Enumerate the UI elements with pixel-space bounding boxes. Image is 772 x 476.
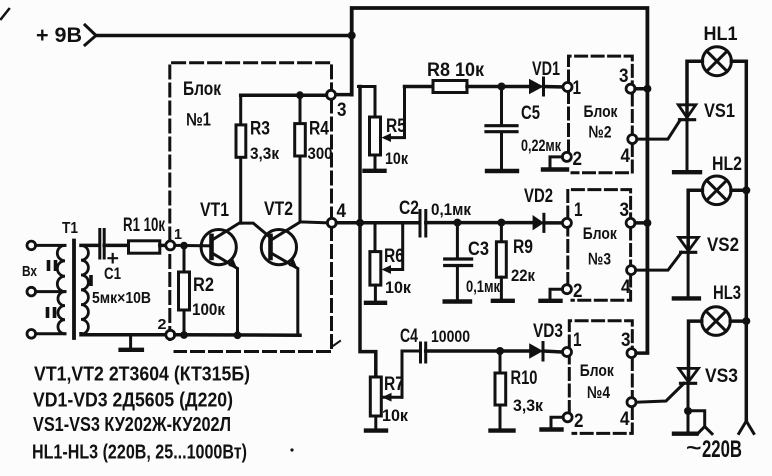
svg-text:1: 1 xyxy=(573,78,582,99)
svg-text:VD3: VD3 xyxy=(533,321,563,342)
svg-text:№2: №2 xyxy=(589,123,612,142)
svg-text:C4: C4 xyxy=(400,326,418,347)
svg-text:R4: R4 xyxy=(309,119,329,140)
svg-text:R1 10к: R1 10к xyxy=(123,215,165,236)
svg-text:VD2: VD2 xyxy=(524,186,553,207)
svg-text:Блок: Блок xyxy=(584,103,619,121)
svg-text:0,1мк: 0,1мк xyxy=(466,278,501,296)
svg-text:VD1-VD3 2Д5605 (Д220): VD1-VD3 2Д5605 (Д220) xyxy=(33,389,233,412)
svg-text:2: 2 xyxy=(158,316,167,333)
svg-text:VT1,VT2 2Т3604 (КТ315Б): VT1,VT2 2Т3604 (КТ315Б) xyxy=(34,363,250,386)
svg-text:3: 3 xyxy=(619,66,629,87)
svg-text:T1: T1 xyxy=(62,220,78,237)
svg-text:3: 3 xyxy=(620,200,630,221)
svg-text:10к: 10к xyxy=(385,278,411,297)
svg-text:С1: С1 xyxy=(104,264,121,283)
svg-text:Вх: Вх xyxy=(22,263,38,280)
svg-text:Блок: Блок xyxy=(580,362,615,380)
svg-text:VT1: VT1 xyxy=(200,200,229,221)
svg-text:C5: C5 xyxy=(521,103,540,124)
svg-text:4: 4 xyxy=(621,277,631,298)
svg-text:Блок: Блок xyxy=(183,79,221,100)
svg-text:R6: R6 xyxy=(384,246,404,267)
svg-text:VD1: VD1 xyxy=(532,59,560,80)
svg-text:3,3к: 3,3к xyxy=(513,396,543,415)
svg-text:R2: R2 xyxy=(193,275,214,296)
svg-text:VS1: VS1 xyxy=(704,101,735,122)
svg-text:0,22мк: 0,22мк xyxy=(521,137,562,155)
svg-text:VT2: VT2 xyxy=(264,199,293,220)
svg-text:HL2: HL2 xyxy=(712,154,742,175)
svg-text:C2: C2 xyxy=(399,198,419,219)
svg-text:R7: R7 xyxy=(384,374,404,395)
svg-text:0,1мк: 0,1мк xyxy=(431,201,472,219)
svg-text:4: 4 xyxy=(337,201,347,222)
svg-text:3,3к: 3,3к xyxy=(250,144,279,163)
svg-text:№1: №1 xyxy=(186,110,211,130)
svg-text:220В: 220В xyxy=(702,436,742,463)
svg-text:№4: №4 xyxy=(587,383,610,402)
svg-text:№3: №3 xyxy=(588,250,611,269)
svg-text:R9: R9 xyxy=(513,237,533,258)
svg-text:HL3: HL3 xyxy=(713,283,741,304)
svg-text:1: 1 xyxy=(574,200,583,221)
svg-text:R8 10к: R8 10к xyxy=(427,60,484,81)
svg-text:C3: C3 xyxy=(468,239,489,260)
svg-text:~: ~ xyxy=(686,437,702,460)
svg-text:5мк×10В: 5мк×10В xyxy=(92,290,151,307)
svg-text:22к: 22к xyxy=(511,266,535,285)
svg-text:2: 2 xyxy=(573,281,583,302)
svg-text:10000: 10000 xyxy=(431,328,470,346)
svg-text:HL1-HL3 (220В, 25...1000Вт): HL1-HL3 (220В, 25...1000Вт) xyxy=(32,441,247,464)
svg-text:1: 1 xyxy=(573,330,582,351)
svg-text:2: 2 xyxy=(573,149,583,170)
svg-text:VS3: VS3 xyxy=(705,366,738,387)
svg-text:4: 4 xyxy=(620,409,630,430)
svg-text:HL1: HL1 xyxy=(704,24,738,45)
svg-text:100к: 100к xyxy=(192,300,225,319)
svg-text:300: 300 xyxy=(308,144,333,163)
svg-text:2: 2 xyxy=(574,411,584,432)
svg-text:Блок: Блок xyxy=(583,225,618,243)
svg-text:R10: R10 xyxy=(511,368,538,389)
svg-text:R5: R5 xyxy=(386,116,406,137)
svg-text:1: 1 xyxy=(174,226,182,243)
svg-text:II: II xyxy=(44,305,58,322)
svg-text:3: 3 xyxy=(621,330,631,351)
svg-text:VS2: VS2 xyxy=(707,235,739,256)
svg-text:4: 4 xyxy=(621,146,631,167)
svg-text:+ 9В: + 9В xyxy=(36,24,82,47)
svg-text:10к: 10к xyxy=(382,406,408,425)
svg-text:10к: 10к xyxy=(385,149,408,168)
svg-text:VS1-VS3 КУ202Ж-КУ202Л: VS1-VS3 КУ202Ж-КУ202Л xyxy=(33,413,231,436)
svg-text:3: 3 xyxy=(337,100,347,121)
svg-text:R3: R3 xyxy=(250,119,270,140)
